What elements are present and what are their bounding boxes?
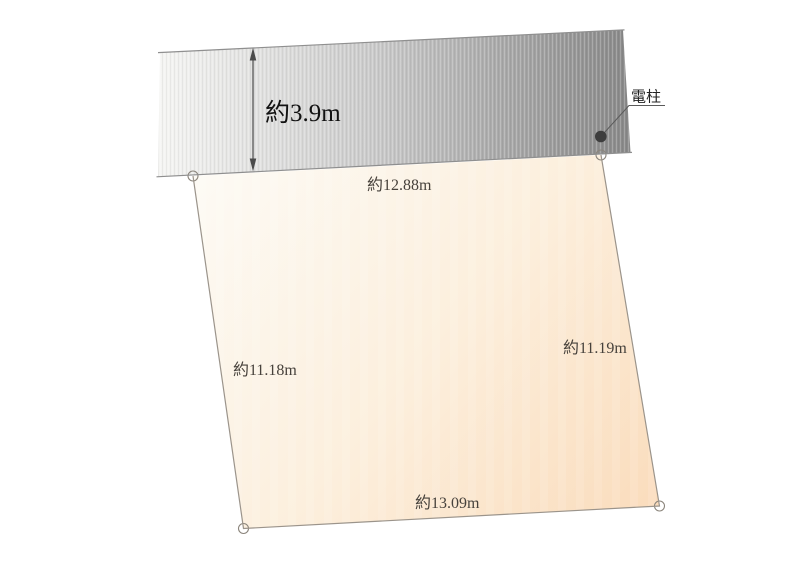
utility-pole-marker [595,131,607,143]
road-texture [158,30,631,177]
plot-right-dimension-label: 約11.19m [563,339,627,357]
road-width-label: 約3.9m [265,99,341,127]
utility-pole-label: 電柱 [631,89,661,106]
site-plan-diagram: 約3.9m 電柱 約12.88m 約11.18m 約11.19m 約13.09m [0,0,800,565]
site-plan-canvas: 約3.9m 電柱 約12.88m 約11.18m 約11.19m 約13.09m [0,0,800,565]
road-surface [158,30,631,177]
plot-top-dimension-label: 約12.88m [367,176,432,194]
plot-bottom-dimension-label: 約13.09m [415,494,480,512]
plot-left-dimension-label: 約11.18m [233,361,297,379]
